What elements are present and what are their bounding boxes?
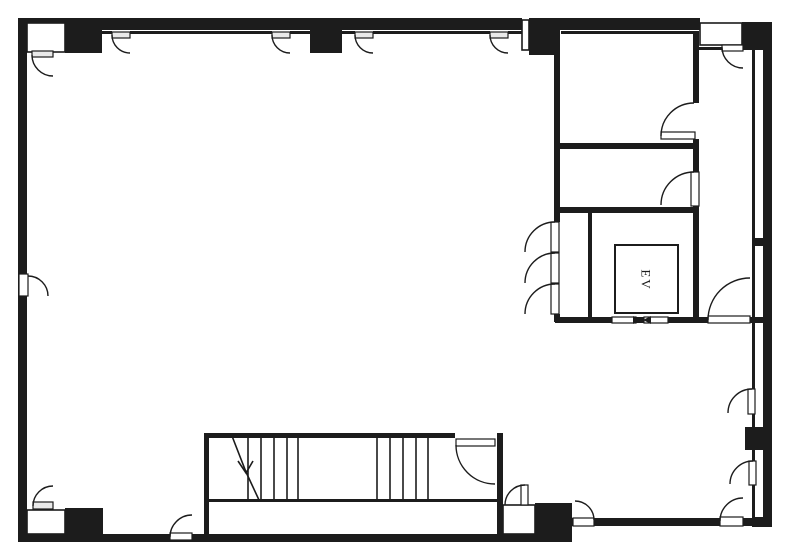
interior-wall-segment (555, 143, 699, 149)
door-leaf (691, 172, 699, 206)
door-leaf (456, 439, 495, 446)
door-leaf (33, 502, 53, 509)
interior-wall-segment (130, 31, 272, 34)
floor-plan-drawing: EV (0, 0, 787, 556)
interior-wall-segment (208, 499, 497, 502)
door-leaf (661, 132, 695, 139)
door-leaf (720, 517, 743, 526)
interior-wall-segment (290, 31, 310, 34)
door-leaf (19, 274, 28, 296)
window-opening (700, 23, 742, 45)
interior-wall-segment (554, 30, 560, 222)
interior-wall-segment (588, 213, 592, 317)
interior-wall-segment (752, 50, 755, 518)
window-opening (503, 505, 535, 534)
door-leaf (355, 32, 373, 38)
door-leaf (170, 533, 192, 540)
interior-wall-segment (693, 31, 699, 103)
door-leaf (708, 316, 750, 323)
elevator-label: EV (639, 269, 654, 290)
door-leaf (749, 461, 756, 485)
interior-wall-segment (204, 433, 455, 438)
door-leaf (722, 45, 743, 51)
interior-wall-segment (342, 31, 355, 34)
column (65, 18, 102, 53)
interior-wall-segment (373, 31, 490, 34)
interior-wall-segment (561, 31, 693, 34)
interior-wall-segment (555, 207, 699, 213)
door-leaf (112, 32, 130, 38)
elevator-door-panel (612, 317, 636, 323)
outer-wall-segment (560, 18, 700, 30)
interior-wall-segment (508, 31, 522, 34)
interior-wall-segment (204, 433, 209, 535)
column (310, 18, 342, 53)
column (745, 427, 772, 450)
window-opening (522, 20, 529, 50)
column (535, 503, 572, 540)
interior-wall-segment (699, 47, 722, 50)
outer-wall-segment (752, 517, 772, 527)
door-leaf (521, 485, 528, 505)
window-opening (27, 510, 65, 534)
door-leaf (272, 32, 290, 38)
floor-plan: EV (0, 0, 787, 556)
door-leaf (573, 518, 594, 526)
interior-wall-segment (497, 433, 503, 535)
door-leaf (551, 222, 559, 252)
outer-wall-segment (763, 22, 772, 527)
interior-wall-segment (102, 31, 112, 34)
door-leaf (551, 284, 559, 314)
door-leaf (551, 253, 559, 283)
interior-wall-segment (693, 206, 699, 322)
column (65, 508, 103, 537)
door-leaf (490, 32, 508, 38)
door-leaf (748, 389, 755, 414)
window-opening (27, 23, 65, 52)
door-leaf (32, 51, 53, 57)
